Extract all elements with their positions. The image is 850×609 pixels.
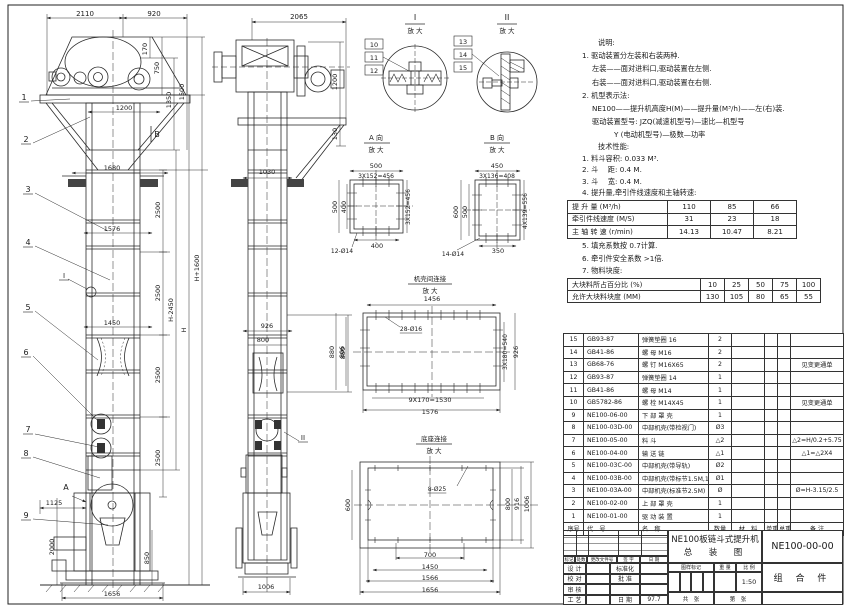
table-row: 提 升 量 (M³/h)1108566 [568, 201, 797, 214]
dim-label: 500 [461, 206, 469, 218]
dim-label: II [301, 434, 305, 442]
table-cell [732, 396, 765, 409]
dim-label: 13 [459, 38, 467, 46]
table-cell [732, 447, 765, 460]
dim-label: A [63, 483, 69, 492]
table-cell [778, 459, 791, 472]
tb-scale-label: 比 例 [736, 563, 762, 572]
revision-grid [563, 530, 668, 556]
dim-label: 170 [141, 43, 149, 55]
table-row: 10GB5782-86螺 栓 M14X451见变更通单 [564, 396, 844, 409]
dim-label: 2110 [76, 10, 94, 18]
dim-label: B [154, 130, 160, 139]
table-cell: 8 [564, 422, 584, 435]
table-cell [791, 422, 844, 435]
table-cell [732, 510, 765, 523]
dim-label: H+1600 [193, 255, 201, 282]
dim-label: 11 [370, 54, 378, 62]
table-cell: △1 [709, 447, 732, 460]
dim-label: 400 [340, 201, 348, 213]
dim-label: 1030 [259, 168, 276, 176]
tech-line: 7. 物料块度: [578, 265, 846, 278]
tb-review-label: 审 核 [563, 584, 586, 595]
table-cell: 1 [709, 409, 732, 422]
table-cell: 输 送 链 [639, 447, 709, 460]
table-cell: 1 [564, 510, 584, 523]
dim-label: 10 [370, 41, 378, 49]
table-cell [765, 396, 778, 409]
dim-label: 926 [261, 322, 273, 330]
table-cell: 105 [725, 291, 749, 303]
table-cell [765, 384, 778, 397]
dim-label: 9 [23, 511, 28, 520]
dim-label: 800 [504, 498, 512, 510]
dim-label: 806 [338, 346, 346, 358]
tech-line: 3. 斗 宽: 0.4 M. [578, 176, 846, 188]
table-cell: 大块料所占百分比 (%) [568, 279, 701, 291]
tb-cell [703, 572, 715, 592]
table-cell [765, 371, 778, 384]
table-cell: 25 [725, 279, 749, 291]
front-elevation-view [40, 30, 210, 592]
table-row: 大块料所占百分比 (%)10255075100 [568, 279, 821, 291]
dim-label: 850 [143, 552, 151, 564]
table-cell: 31 [668, 213, 711, 226]
tb-doc-label: 更改文件号 [587, 556, 617, 563]
dim-label: 500 [370, 162, 382, 170]
dim-label: 2000 [48, 539, 56, 556]
table-cell: 11 [564, 384, 584, 397]
table-cell [778, 447, 791, 460]
performance-table: 提 升 量 (M³/h)1108566牵引件线速度 (M/S)312318主 轴… [567, 200, 797, 239]
table-cell: 见变更通单 [791, 396, 844, 409]
note-line: 驱动装置型号: JZQ(减速机型号)—速比—机型号 [578, 115, 846, 128]
tech-spec-block: 技术性能: 1. 料斗容积: 0.033 M³. 2. 斗 距: 0.4 M. … [578, 141, 846, 199]
table-cell [778, 510, 791, 523]
table-cell: Ø [709, 485, 732, 498]
table-cell [732, 409, 765, 422]
dim-label: 1350 [165, 92, 173, 109]
table-cell: 6 [564, 447, 584, 460]
table-row: 14GB41-86螺 母 M162 [564, 346, 844, 359]
dim-label: 1125 [46, 499, 63, 507]
side-view-dimensions [243, 18, 352, 595]
tb-sign-label: 签 字 [617, 556, 640, 563]
dim-label: 700 [424, 551, 436, 559]
dim-label: 350 [492, 247, 504, 255]
dim-label: 450 [491, 162, 503, 170]
table-cell: 23 [711, 213, 754, 226]
tb-weight-label: 重 量 [714, 563, 736, 572]
table-cell: 5 [564, 459, 584, 472]
tb-date2-label: 日 期 [610, 595, 640, 606]
dim-label: 500 [331, 201, 339, 213]
table-cell: 2 [564, 497, 584, 510]
table-cell [765, 497, 778, 510]
dim-label: 750 [153, 62, 161, 74]
dim-label: I [63, 272, 65, 280]
table-row: 9NE100-06-00下 部 罩 壳1 [564, 409, 844, 422]
dim-label: 2500 [154, 202, 162, 219]
tb-cell [640, 563, 668, 574]
dim-label: 1450 [422, 563, 439, 571]
front-view-dimensions [31, 14, 208, 601]
table-cell [778, 472, 791, 485]
table-cell: 牵引件线速度 (M/S) [568, 213, 668, 226]
table-cell [732, 422, 765, 435]
table-cell: 9 [564, 409, 584, 422]
table-cell: 螺 母 M14 [639, 384, 709, 397]
table-cell: 弹簧垫圈 14 [639, 371, 709, 384]
table-cell [778, 371, 791, 384]
table-cell [778, 434, 791, 447]
table-row: 5NE100-03C-00中部机壳(带导轨)Ø2 [564, 459, 844, 472]
dim-label: 3X180=540 [502, 334, 509, 370]
section-B-view [457, 143, 530, 250]
table-cell [791, 334, 844, 347]
dim-label: 916 [513, 498, 521, 510]
table-cell: 提 升 量 (M³/h) [568, 201, 668, 214]
table-cell: 驱 动 装 置 [639, 510, 709, 523]
table-cell: 弹簧垫圈 16 [639, 334, 709, 347]
table-cell: NE100-01-00 [584, 510, 639, 523]
table-cell: 10.47 [711, 226, 754, 239]
dim-label: 1200 [116, 104, 133, 112]
table-row: 13GB68-76螺 钉 M16X652见变更通单 [564, 359, 844, 372]
lump-size-table: 大块料所占百分比 (%)10255075100允许大块料块度 (MM)13010… [567, 278, 821, 303]
table-row: 主 轴 转 速 (r/min)14.1310.478.21 [568, 226, 797, 239]
dim-label: II [505, 13, 510, 22]
tb-date-value: 97.7 [640, 595, 668, 606]
tb-design-label: 设 计 [563, 563, 586, 574]
table-cell: 14.13 [668, 226, 711, 239]
table-cell: △1=△2X4 [791, 447, 844, 460]
dim-label: 1200 [331, 74, 339, 91]
table-cell: 12 [564, 371, 584, 384]
table-cell: 100 [797, 279, 821, 291]
table-cell [791, 459, 844, 472]
dim-label: 926 [512, 346, 520, 358]
tb-check-label: 校 对 [563, 574, 586, 585]
table-cell: GB93-87 [584, 371, 639, 384]
table-cell [765, 346, 778, 359]
table-cell [765, 359, 778, 372]
note-line: NE100——提升机高度H(M)——提升量(M³/h)——左(右)装. [578, 102, 846, 115]
tb-cell [640, 574, 668, 585]
dim-label: 1500 [178, 84, 186, 101]
tb-cell [586, 563, 610, 574]
tb-date-label: 日 期 [640, 556, 668, 563]
dim-label: 1656 [422, 586, 439, 594]
drawing-number: NE100-00-00 [762, 530, 843, 563]
table-cell: 75 [773, 279, 797, 291]
base-detail [352, 444, 540, 595]
table-cell: 2 [709, 346, 732, 359]
tb-cell [586, 595, 610, 606]
dim-label: 3X136=408 [479, 173, 515, 180]
table-row: 4NE100-03B-00中部机壳(带标节1.5M,1M)Ø1 [564, 472, 844, 485]
tb-cell [586, 584, 610, 595]
table-cell [778, 396, 791, 409]
dim-label: 1006 [258, 583, 275, 591]
dim-label: 1656 [104, 590, 121, 598]
tb-cell [762, 592, 843, 605]
table-cell: 1 [709, 510, 732, 523]
table-cell: 4 [564, 472, 584, 485]
table-cell: 85 [711, 201, 754, 214]
dim-label: 1680 [104, 164, 121, 172]
tb-cell [640, 584, 668, 595]
dim-label: 1006 [523, 496, 531, 513]
table-cell: 下 部 罩 壳 [639, 409, 709, 422]
table-cell: 1 [709, 371, 732, 384]
table-cell: NE100-05-00 [584, 434, 639, 447]
dim-label: A 向 [369, 133, 383, 142]
note-line: 右装——面对进料口,驱动装置在右侧. [578, 76, 846, 89]
table-cell: NE100-03C-00 [584, 459, 639, 472]
dim-label: 9X170=1530 [409, 396, 452, 404]
table-cell [765, 334, 778, 347]
table-cell [791, 510, 844, 523]
table-cell [765, 485, 778, 498]
table-cell: 料 斗 [639, 434, 709, 447]
table-cell [732, 359, 765, 372]
tb-cell [714, 572, 736, 592]
dim-label: H [180, 327, 188, 332]
table-cell [791, 346, 844, 359]
dim-label: 28-Ø16 [400, 326, 422, 333]
dim-label: I [414, 13, 416, 22]
table-cell [765, 472, 778, 485]
dim-label: B 向 [490, 133, 504, 142]
table-row: 15GB93-87弹簧垫圈 162 [564, 334, 844, 347]
table-cell: 中部机壳(带标节1.5M,1M) [639, 472, 709, 485]
table-cell [778, 334, 791, 347]
dim-label: 3 [25, 185, 30, 194]
dim-label: 130 [331, 128, 339, 140]
dim-label: 6 [23, 348, 28, 357]
table-cell: 1 [709, 384, 732, 397]
dim-label: 底座连接 [421, 434, 448, 443]
table-cell: △2=H/0.2+5.75 [791, 434, 844, 447]
table-cell: NE100-06-00 [584, 409, 639, 422]
notes-title: 说明: [578, 36, 846, 49]
dim-label: 1 [21, 93, 26, 102]
dim-label: 放 大 [426, 446, 442, 455]
table-cell [732, 334, 765, 347]
table-row: 牵引件线速度 (M/S)312318 [568, 213, 797, 226]
drawing-sheet: 2110920170750135015001200168015761450250… [0, 0, 850, 609]
tech-line: 5. 填充系数按 0.7计算. [578, 240, 846, 253]
dim-label: 2 [23, 135, 28, 144]
dim-label: 放 大 [422, 286, 438, 295]
dim-label: 14-Ø14 [442, 251, 464, 258]
dimension-labels: 2110920170750135015001200168015761450250… [19, 10, 531, 598]
table-cell [765, 422, 778, 435]
table-cell: 螺 钉 M16X65 [639, 359, 709, 372]
dim-label: 5 [25, 303, 30, 312]
table-cell: 80 [749, 291, 773, 303]
table-row: 8NE100-03D-00中部机壳(带检视门)Ø3 [564, 422, 844, 435]
table-cell: 65 [773, 291, 797, 303]
table-cell: 130 [701, 291, 725, 303]
table-cell [732, 371, 765, 384]
table-cell: 1 [709, 396, 732, 409]
table-cell: 允许大块料块度 (MM) [568, 291, 701, 303]
dim-label: 1456 [424, 295, 441, 303]
table-row: 2NE100-02-00上 部 罩 壳1 [564, 497, 844, 510]
table-cell: 主 轴 转 速 (r/min) [568, 226, 668, 239]
dim-label: 12-Ø14 [331, 248, 353, 255]
table-row: 6NE100-04-00输 送 链△1△1=△2X4 [564, 447, 844, 460]
table-cell [732, 384, 765, 397]
table-cell: 上 部 罩 壳 [639, 497, 709, 510]
table-cell: 2 [709, 334, 732, 347]
dim-label: 1576 [104, 225, 121, 233]
part-type: 组 合 件 [762, 563, 843, 592]
dim-label: 600 [452, 206, 460, 218]
table-cell: 55 [797, 291, 821, 303]
table-cell [791, 384, 844, 397]
dim-label: 机壳间连接 [414, 274, 447, 283]
tb-std-label: 标准化 [610, 563, 640, 574]
table-row: 7NE100-05-00料 斗△2△2=H/0.2+5.75 [564, 434, 844, 447]
table-cell [765, 434, 778, 447]
table-row: 允许大块料块度 (MM)130105806555 [568, 291, 821, 303]
tb-craft-label: 工 艺 [563, 595, 586, 606]
table-cell: NE100-03A-00 [584, 485, 639, 498]
tb-scale-value: 1:50 [736, 572, 762, 592]
dim-label: 3X152=456 [358, 173, 394, 180]
table-cell [765, 409, 778, 422]
tech-line: 2. 斗 距: 0.4 M. [578, 164, 846, 176]
dim-label: 14 [459, 51, 467, 59]
dim-label: 1566 [422, 574, 439, 582]
dim-label: 放 大 [368, 145, 384, 154]
table-row: 11GB41-86螺 母 M141 [564, 384, 844, 397]
dim-label: 920 [147, 10, 160, 18]
table-cell: 10 [701, 279, 725, 291]
table-cell: 13 [564, 359, 584, 372]
table-cell [778, 359, 791, 372]
table-cell: NE100-03B-00 [584, 472, 639, 485]
table-row: 1NE100-01-00驱 动 装 置1 [564, 510, 844, 523]
table-cell: GB68-76 [584, 359, 639, 372]
table-cell: 3 [564, 485, 584, 498]
table-cell: 见变更通单 [791, 359, 844, 372]
table-cell: 螺 母 M16 [639, 346, 709, 359]
table-cell: 18 [754, 213, 797, 226]
table-row: 3NE100-03A-00中部机壳(标准节2.5M)ØØ=H-3.15/2.5 [564, 485, 844, 498]
dim-label: 880 [328, 346, 336, 358]
note-line: Y (电动机型号)—极数—功率 [578, 128, 846, 141]
table-cell: 66 [754, 201, 797, 214]
dim-label: 2500 [154, 450, 162, 467]
table-cell [778, 422, 791, 435]
table-cell [778, 346, 791, 359]
table-cell: 中部机壳(标准节2.5M) [639, 485, 709, 498]
table-cell [791, 472, 844, 485]
bom-table: 15GB93-87弹簧垫圈 16214GB41-86螺 母 M16213GB68… [563, 333, 844, 536]
tb-cell [610, 584, 640, 595]
tb-sheetno-label: 第 张 [714, 592, 762, 605]
table-cell: 中部机壳(带检视门) [639, 422, 709, 435]
table-cell: 7 [564, 434, 584, 447]
table-cell: NE100-02-00 [584, 497, 639, 510]
table-cell [778, 409, 791, 422]
dim-label: 800 [257, 336, 269, 344]
table-cell [732, 472, 765, 485]
table-row: 12GB93-87弹簧垫圈 141 [564, 371, 844, 384]
tech-line: 6. 牵引件安全系数 >1倍. [578, 253, 846, 266]
table-cell: 14 [564, 346, 584, 359]
note-line: 2. 机型表示法: [578, 89, 846, 102]
tb-sheets-label: 共 张 [668, 592, 714, 605]
dim-label: 4X139=556 [522, 193, 529, 229]
dim-label: 8-Ø25 [428, 486, 447, 493]
dim-label: 1576 [422, 408, 439, 416]
drawing-title: NE100板链斗式提升机 总 装 图 [668, 530, 762, 563]
table-cell [778, 485, 791, 498]
tb-approve-label: 批 准 [610, 574, 640, 585]
casing-joint-detail [336, 284, 515, 413]
dim-label: 400 [371, 242, 383, 250]
table-cell [765, 510, 778, 523]
table-cell: GB5782-86 [584, 396, 639, 409]
table-cell: 中部机壳(带导轨) [639, 459, 709, 472]
dim-label: 1450 [104, 319, 121, 327]
table-cell: 2 [709, 359, 732, 372]
dim-label: 15 [459, 64, 467, 72]
tech-line: 1. 料斗容积: 0.033 M³. [578, 153, 846, 165]
table-cell: Ø=H-3.15/2.5 [791, 485, 844, 498]
dim-label: 3X152=456 [405, 189, 412, 225]
drawing-title-line1: NE100板链斗式提升机 [671, 534, 758, 547]
table-cell: GB93-87 [584, 334, 639, 347]
table-cell [732, 434, 765, 447]
tb-mark-label: 标记 [563, 556, 575, 563]
dim-label: 2065 [290, 13, 308, 21]
table-cell: Ø3 [709, 422, 732, 435]
table-cell: 10 [564, 396, 584, 409]
dim-label: 8 [23, 449, 28, 458]
note-line: 1. 驱动装置分左装和右装两种. [578, 49, 846, 62]
table-cell: Ø2 [709, 459, 732, 472]
dim-label: 放 大 [407, 26, 423, 35]
notes-block-2: 5. 填充系数按 0.7计算. 6. 牵引件安全系数 >1倍. 7. 物料块度: [578, 240, 846, 278]
table-cell [778, 384, 791, 397]
note-line: 左装——面对进料口,驱动装置在左侧. [578, 62, 846, 75]
table-cell [732, 459, 765, 472]
table-cell: 8.21 [754, 226, 797, 239]
dim-label: 2500 [154, 285, 162, 302]
table-cell: Ø1 [709, 472, 732, 485]
tech-title: 技术性能: [578, 141, 846, 153]
table-cell [765, 447, 778, 460]
table-cell [732, 497, 765, 510]
table-cell: △2 [709, 434, 732, 447]
table-cell: 50 [749, 279, 773, 291]
table-cell: NE100-04-00 [584, 447, 639, 460]
table-cell: GB41-86 [584, 384, 639, 397]
table-cell [778, 497, 791, 510]
dim-label: H-2450 [167, 298, 175, 322]
table-cell: 110 [668, 201, 711, 214]
tb-cell [586, 574, 610, 585]
dim-label: 600 [344, 499, 352, 511]
notes-block: 说明: 1. 驱动装置分左装和右装两种. 左装——面对进料口,驱动装置在左侧. … [578, 36, 846, 142]
tb-cell [668, 572, 680, 592]
